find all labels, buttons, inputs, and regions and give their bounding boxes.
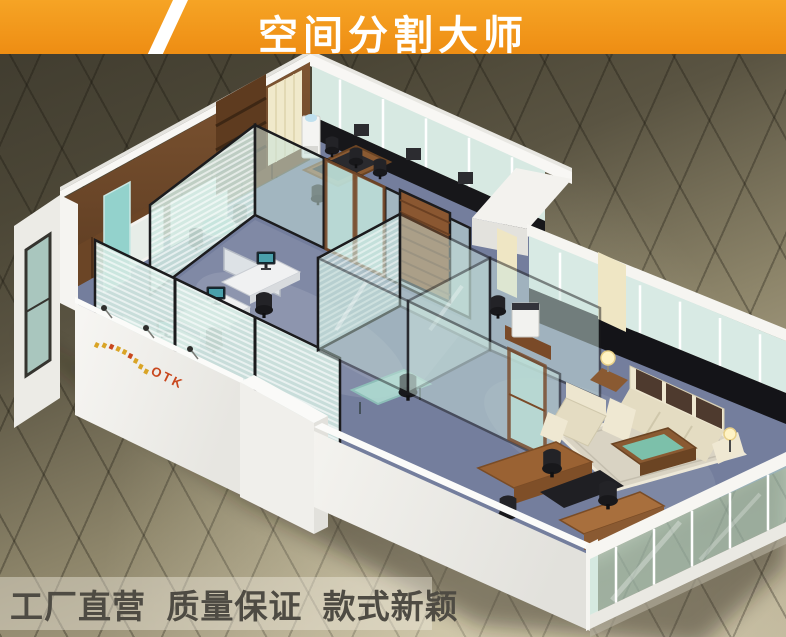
- banner-title: 空间分割大师: [0, 3, 786, 61]
- left-entry-wall: [14, 195, 78, 428]
- curtain-column: [598, 252, 626, 332]
- title-banner: 空间分割大师: [0, 0, 786, 54]
- product-image: OTK 空间分割大师 工厂直营 质量保证: [0, 0, 786, 637]
- tagline-text: 工厂直营 质量保证 款式新颖: [0, 580, 459, 628]
- tagline-bar: 工厂直营 质量保证 款式新颖: [0, 577, 432, 630]
- office-3d-render: OTK: [0, 0, 786, 637]
